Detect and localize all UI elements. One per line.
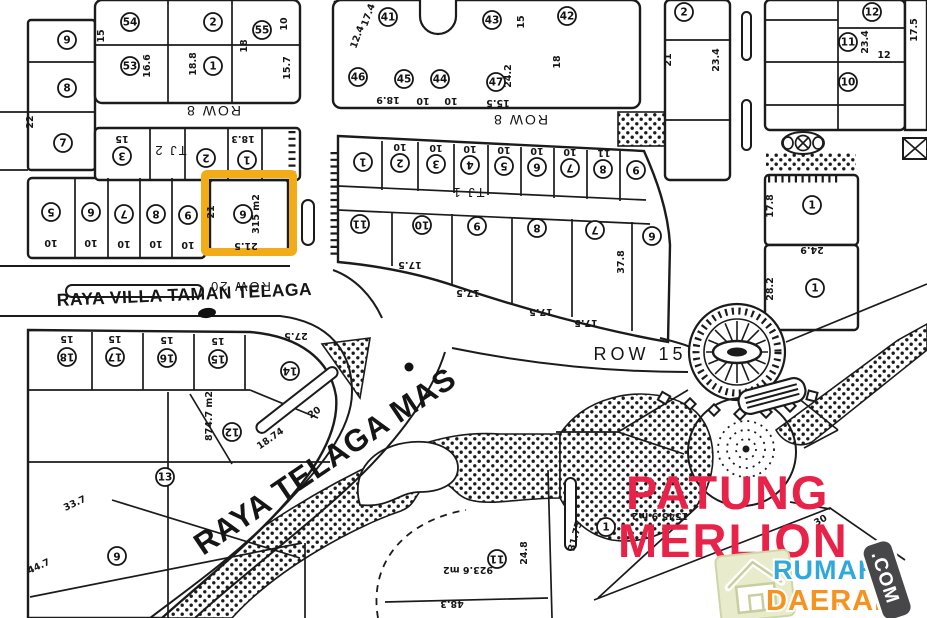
parcel-number: 12 bbox=[223, 423, 241, 441]
svg-text:5: 5 bbox=[500, 159, 507, 171]
svg-text:13: 13 bbox=[158, 472, 173, 484]
measurement-label: 10 bbox=[429, 142, 443, 153]
measurement-label: 15 bbox=[160, 334, 173, 345]
parcel-number: 11 bbox=[351, 215, 369, 233]
parcel-number: 46 bbox=[349, 68, 367, 86]
x-box-marker bbox=[903, 138, 927, 159]
svg-text:15: 15 bbox=[211, 352, 226, 364]
parcel-number: 2 bbox=[675, 3, 693, 21]
parcel-number: 6 bbox=[108, 547, 126, 565]
svg-text:6: 6 bbox=[533, 160, 540, 172]
parcel-number: 9 bbox=[627, 161, 645, 179]
svg-text:12: 12 bbox=[225, 425, 240, 437]
measurement-label: 37.8 bbox=[616, 250, 627, 274]
measurement-label: 10 bbox=[393, 141, 407, 152]
measurement-label: 315 m2 bbox=[251, 194, 262, 234]
measurement-label: 21.5 bbox=[234, 240, 257, 251]
svg-text:7: 7 bbox=[59, 138, 66, 150]
parcel-number: 1 bbox=[597, 518, 615, 536]
measurement-label: 15.7 bbox=[282, 56, 293, 79]
measurement-label: 15 bbox=[516, 15, 527, 28]
measurement-label: 15 bbox=[211, 335, 224, 346]
svg-text:10: 10 bbox=[841, 77, 856, 89]
parcel-number: 1 bbox=[204, 57, 222, 75]
svg-text:16: 16 bbox=[160, 351, 175, 363]
svg-text:3: 3 bbox=[432, 157, 439, 169]
svg-text:12: 12 bbox=[865, 7, 880, 19]
svg-text:8: 8 bbox=[152, 207, 159, 219]
site-plan-map: 9875453215532156789641434246454447123456… bbox=[0, 0, 927, 618]
parcel-number: 6 bbox=[528, 158, 546, 176]
measurement-label: 17.5 bbox=[909, 18, 920, 41]
parcel-number: 18 bbox=[58, 348, 76, 366]
svg-text:1: 1 bbox=[209, 61, 216, 73]
cul-de-sac bbox=[420, 0, 456, 34]
svg-text:6: 6 bbox=[239, 207, 246, 219]
road-median-pill bbox=[302, 200, 314, 245]
parcel-number: 9 bbox=[58, 31, 76, 49]
parcel-number: 10 bbox=[413, 216, 431, 234]
parcel-number: 42 bbox=[558, 7, 576, 25]
parcel-number: 55 bbox=[253, 21, 271, 39]
measurement-label: 18 bbox=[239, 39, 250, 53]
svg-text:42: 42 bbox=[560, 11, 575, 23]
road-blob bbox=[197, 307, 216, 319]
svg-text:6: 6 bbox=[648, 229, 655, 241]
parcel-number: 11 bbox=[839, 33, 857, 51]
measurement-label: 24.9 bbox=[800, 244, 823, 255]
parcel-number: 5 bbox=[495, 157, 513, 175]
parcel-number: 3 bbox=[427, 155, 445, 173]
parcel-number: 17 bbox=[106, 348, 124, 366]
parcel-number: 7 bbox=[54, 134, 72, 152]
measurement-label: 10 bbox=[416, 95, 430, 106]
svg-text:11: 11 bbox=[490, 552, 505, 564]
svg-text:5: 5 bbox=[47, 205, 54, 217]
parcel-number: 6 bbox=[82, 203, 100, 221]
parcel-number: 3 bbox=[113, 147, 131, 165]
svg-text:1: 1 bbox=[359, 155, 366, 167]
junction-dot bbox=[405, 363, 414, 372]
measurement-label: 10 bbox=[530, 145, 544, 156]
svg-text:1: 1 bbox=[811, 283, 818, 295]
measurement-label: 21 bbox=[206, 205, 217, 218]
parcel-number: 1 bbox=[354, 153, 372, 171]
parcel-number: 8 bbox=[528, 219, 546, 237]
parcel-number: 1 bbox=[238, 151, 256, 169]
parcel-number: 15 bbox=[209, 350, 227, 368]
measurement-label: 10 bbox=[444, 95, 458, 106]
measurement-label: 10 bbox=[44, 237, 58, 248]
svg-text:2: 2 bbox=[680, 7, 687, 19]
measurement-label: 874.7 m2 bbox=[204, 391, 215, 441]
parcel-number: 2 bbox=[197, 149, 215, 167]
parcel-number: 8 bbox=[594, 160, 612, 178]
row8-center-label: ROW 8 bbox=[492, 112, 548, 128]
svg-text:1: 1 bbox=[602, 522, 609, 534]
measurement-label: 17.5 bbox=[398, 259, 421, 270]
svg-text:43: 43 bbox=[485, 15, 500, 27]
parcel-number: 2 bbox=[204, 13, 222, 31]
measurement-label: 923.6 m2 bbox=[443, 564, 493, 575]
measurement-label: 10 bbox=[563, 146, 577, 157]
parcel-number: 6 bbox=[234, 205, 252, 223]
measurement-label: 15 bbox=[108, 333, 121, 344]
measurement-label: 17.5 bbox=[529, 306, 552, 317]
svg-text:2: 2 bbox=[209, 17, 216, 29]
svg-text:44: 44 bbox=[433, 74, 448, 86]
parcel-number: 7 bbox=[115, 205, 133, 223]
row8-left-label: ROW 8 bbox=[185, 103, 241, 119]
measurement-label: 12 bbox=[877, 50, 890, 61]
measurement-label: 27.5 bbox=[284, 330, 307, 341]
svg-text:45: 45 bbox=[397, 74, 412, 86]
parcel-number: 9 bbox=[179, 206, 197, 224]
measurement-label: 18 bbox=[552, 55, 563, 69]
svg-text:53: 53 bbox=[123, 61, 138, 73]
parcel-number: 2 bbox=[391, 154, 409, 172]
svg-text:17: 17 bbox=[108, 350, 123, 362]
parcel-number: 54 bbox=[121, 13, 139, 31]
measurement-label: 10 bbox=[117, 238, 131, 249]
parcel-number: 10 bbox=[839, 73, 857, 91]
svg-text:8: 8 bbox=[599, 162, 606, 174]
parcel-number: 8 bbox=[147, 205, 165, 223]
svg-text:14: 14 bbox=[283, 364, 298, 376]
landmark-label: PATUNG MERLION bbox=[618, 466, 849, 567]
measurement-label: 10 bbox=[463, 143, 477, 154]
svg-text:11: 11 bbox=[353, 217, 368, 229]
svg-text:7: 7 bbox=[566, 161, 573, 173]
measurement-label: 28.2 bbox=[765, 277, 776, 300]
svg-text:8: 8 bbox=[63, 83, 70, 95]
measurement-label: 15 bbox=[60, 333, 73, 344]
parcel-number: 8 bbox=[58, 79, 76, 97]
raya-villa-label: RAYA VILLA TAMAN TELAGA bbox=[56, 279, 312, 310]
measurement-label: 22 bbox=[25, 115, 36, 128]
svg-text:10: 10 bbox=[415, 218, 430, 230]
block-east-center bbox=[665, 0, 730, 180]
measurement-label: 10 bbox=[279, 17, 290, 31]
measurement-label: 24.2 bbox=[503, 64, 514, 87]
measurement-label: 21 bbox=[663, 53, 674, 66]
svg-text:11: 11 bbox=[841, 37, 856, 49]
measurement-label: 15 bbox=[115, 133, 128, 144]
measurement-label: 18.9 bbox=[376, 94, 399, 105]
road-median-pill bbox=[742, 12, 751, 60]
measurement-label: 17.5 bbox=[456, 287, 479, 298]
svg-text:47: 47 bbox=[489, 77, 504, 89]
svg-text:41: 41 bbox=[381, 12, 396, 24]
parcel-number: 16 bbox=[158, 349, 176, 367]
parcel-number: 44 bbox=[431, 70, 449, 88]
svg-text:54: 54 bbox=[123, 17, 138, 29]
svg-text:6: 6 bbox=[87, 205, 94, 217]
svg-text:9: 9 bbox=[63, 35, 70, 47]
measurement-label: 17.5 bbox=[574, 317, 597, 328]
parcel-number: 13 bbox=[156, 468, 174, 486]
measurement-label: 48.3 bbox=[440, 598, 463, 609]
landmark-line1: PATUNG bbox=[626, 466, 829, 519]
measurement-label: 18.3 bbox=[231, 133, 254, 144]
parcel-number: 45 bbox=[395, 70, 413, 88]
map-canvas: 9875453215532156789641434246454447123456… bbox=[0, 0, 927, 618]
measurement-label: 17.8 bbox=[765, 194, 776, 218]
measurement-label: 11 bbox=[597, 147, 610, 158]
svg-text:1: 1 bbox=[808, 200, 815, 212]
row15-label: ROW 15 bbox=[593, 344, 686, 364]
svg-text:46: 46 bbox=[351, 72, 366, 84]
measurement-label: 23.4 bbox=[860, 30, 871, 54]
svg-text:3: 3 bbox=[118, 149, 125, 161]
parcel-number: 1 bbox=[806, 279, 824, 297]
oval-marker bbox=[782, 132, 824, 154]
measurement-label: 10 bbox=[149, 238, 163, 249]
measurement-label: 10 bbox=[84, 237, 98, 248]
svg-text:2: 2 bbox=[396, 156, 403, 168]
parcel-number: 53 bbox=[121, 57, 139, 75]
tj1-label: TJ 1 bbox=[451, 185, 484, 200]
measurement-label: 15.5 bbox=[486, 97, 509, 108]
parcel-number: 43 bbox=[483, 11, 501, 29]
parcel-number: 9 bbox=[468, 217, 486, 235]
junction-curb bbox=[333, 270, 382, 318]
svg-text:9: 9 bbox=[632, 163, 639, 175]
hatch-strip-ne bbox=[766, 153, 856, 171]
svg-text:2: 2 bbox=[202, 151, 209, 163]
svg-text:7: 7 bbox=[591, 223, 598, 235]
svg-text:9: 9 bbox=[473, 219, 480, 231]
measurement-label: 10 bbox=[497, 144, 511, 155]
svg-text:9: 9 bbox=[184, 208, 191, 220]
parcel-number: 6 bbox=[643, 227, 661, 245]
measurement-label: 23.4 bbox=[711, 48, 722, 72]
measurement-label: 15 bbox=[96, 29, 107, 42]
parcel-number: 41 bbox=[379, 8, 397, 26]
measurement-label: 24.8 bbox=[519, 541, 530, 565]
measurement-label: 10 bbox=[181, 239, 195, 250]
road-median-pill bbox=[742, 100, 751, 150]
svg-text:1: 1 bbox=[243, 153, 250, 165]
svg-text:18: 18 bbox=[60, 350, 75, 362]
tj2-label: TJ 2 bbox=[153, 143, 186, 158]
parcel-number: 14 bbox=[281, 362, 299, 380]
parcel-number: 7 bbox=[586, 221, 604, 239]
svg-text:8: 8 bbox=[533, 221, 540, 233]
parcel-number: 12 bbox=[863, 3, 881, 21]
svg-text:7: 7 bbox=[120, 207, 127, 219]
svg-text:55: 55 bbox=[255, 25, 270, 37]
parcel-number: 4 bbox=[461, 156, 479, 174]
parcel-number: 7 bbox=[561, 159, 579, 177]
measurement-label: 16.6 bbox=[142, 54, 153, 78]
parcel-number: 1 bbox=[803, 196, 821, 214]
measurement-label: 18.8 bbox=[188, 52, 199, 76]
parcel-number: 5 bbox=[42, 203, 60, 221]
svg-text:4: 4 bbox=[466, 158, 473, 170]
svg-text:6: 6 bbox=[113, 549, 120, 561]
